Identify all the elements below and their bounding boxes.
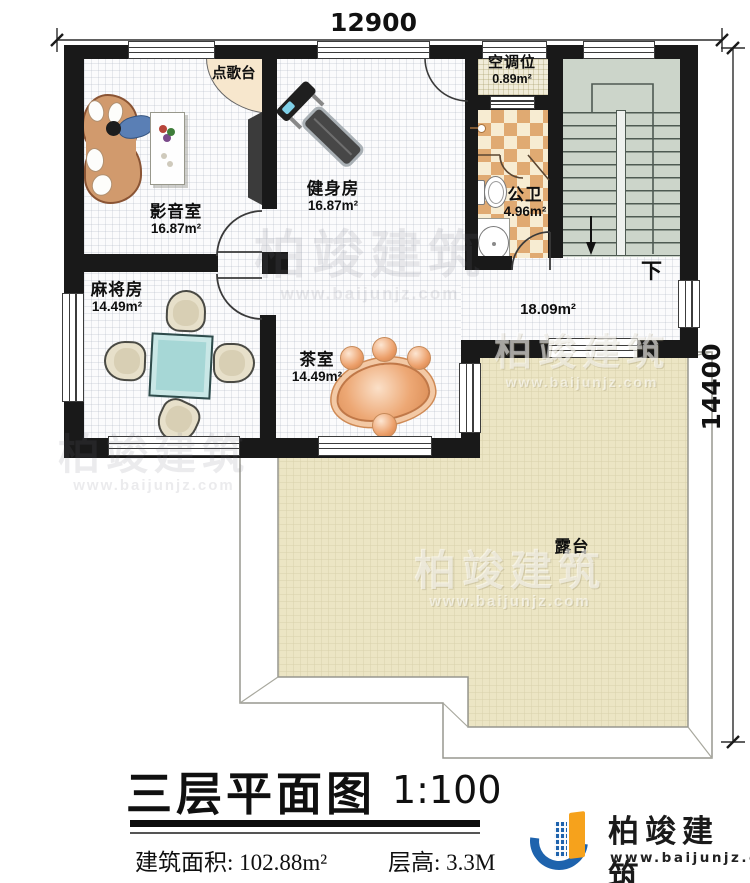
- stair-direction-arrow: [586, 242, 596, 255]
- logo-building-icon: [554, 822, 567, 858]
- room-label-mahjong: 麻将房 14.49m²: [57, 281, 177, 315]
- dimension-right: 14400: [697, 342, 725, 432]
- room-label-wc: 公卫 4.96m²: [465, 186, 585, 220]
- room-label-media: 影音室 16.87m²: [116, 203, 236, 237]
- floor-height-text: 层高: 3.3M: [388, 843, 495, 877]
- shower-partition: [478, 155, 549, 180]
- room-label-terrace: 露台: [512, 538, 632, 556]
- karaoke-label: 点歌台: [212, 62, 256, 83]
- title-rule-thick: [130, 820, 480, 827]
- page-title: 三层平面图: [126, 758, 376, 824]
- room-label-tea: 茶室 14.49m²: [257, 351, 377, 385]
- room-label-gym: 健身房 16.87m²: [273, 180, 393, 214]
- build-area-text: 建筑面积: 102.88m²: [135, 843, 327, 877]
- stairs-down-label: 下: [641, 255, 662, 285]
- drawing-scale: 1:100: [392, 768, 502, 812]
- room-label-ac: 空调位 0.89m²: [452, 55, 572, 86]
- floor-plan-canvas: 影音室 16.87m² 健身房 16.87m² 麻将房 14.49m² 茶室 1…: [0, 0, 750, 883]
- dimension-top: 12900: [330, 8, 410, 37]
- door-arc-mahjong: [217, 274, 262, 319]
- linework: [0, 0, 750, 883]
- logo-building-icon: [569, 811, 585, 859]
- title-rule-thin: [130, 832, 480, 834]
- stair-landing-rail: [592, 84, 653, 254]
- brand-logo: 柏竣建筑 www.baijunjz.com: [528, 798, 750, 883]
- door-arc-bathroom: [512, 232, 550, 270]
- brand-site: www.baijunjz.com: [610, 850, 750, 866]
- brand-name: 柏竣建筑: [608, 806, 750, 883]
- hall-area-label: 18.09m²: [488, 302, 608, 319]
